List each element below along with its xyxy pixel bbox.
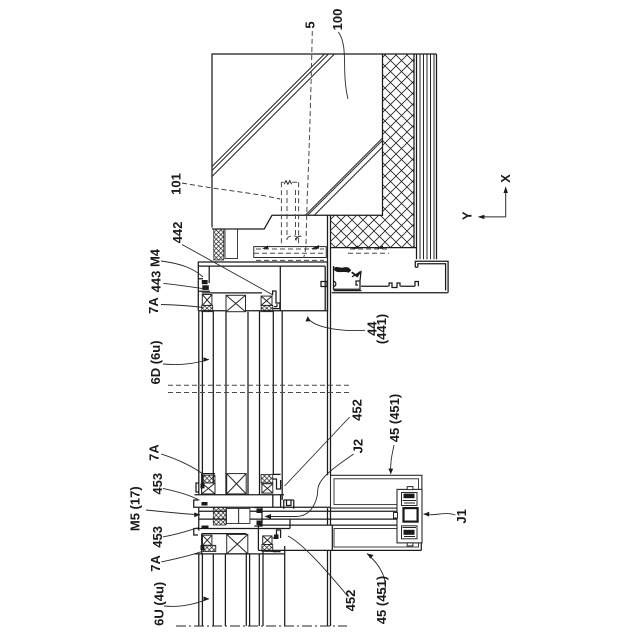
- svg-text:5: 5: [303, 21, 318, 28]
- svg-text:Y: Y: [460, 211, 475, 220]
- svg-text:45 (451): 45 (451): [374, 576, 389, 624]
- svg-text:(441): (441): [374, 314, 389, 344]
- svg-text:7A: 7A: [147, 444, 162, 461]
- svg-text:100: 100: [330, 9, 345, 31]
- svg-text:452: 452: [349, 399, 364, 421]
- svg-text:101: 101: [169, 173, 184, 195]
- svg-text:7A: 7A: [146, 297, 161, 314]
- svg-text:453: 453: [150, 526, 165, 548]
- svg-text:J1: J1: [454, 509, 469, 523]
- svg-text:453: 453: [150, 473, 165, 495]
- svg-text:X: X: [498, 174, 513, 183]
- svg-text:7A: 7A: [148, 554, 163, 571]
- svg-text:45 (451): 45 (451): [387, 394, 402, 442]
- svg-text:J2: J2: [351, 439, 366, 453]
- svg-text:443: 443: [149, 271, 164, 293]
- svg-text:6D (6u): 6D (6u): [148, 340, 163, 384]
- svg-text:M5 (17): M5 (17): [128, 486, 143, 531]
- svg-text:442: 442: [170, 222, 185, 244]
- svg-text:6U (4u): 6U (4u): [152, 582, 167, 626]
- svg-text:M4: M4: [148, 248, 163, 267]
- svg-text:452: 452: [343, 590, 358, 612]
